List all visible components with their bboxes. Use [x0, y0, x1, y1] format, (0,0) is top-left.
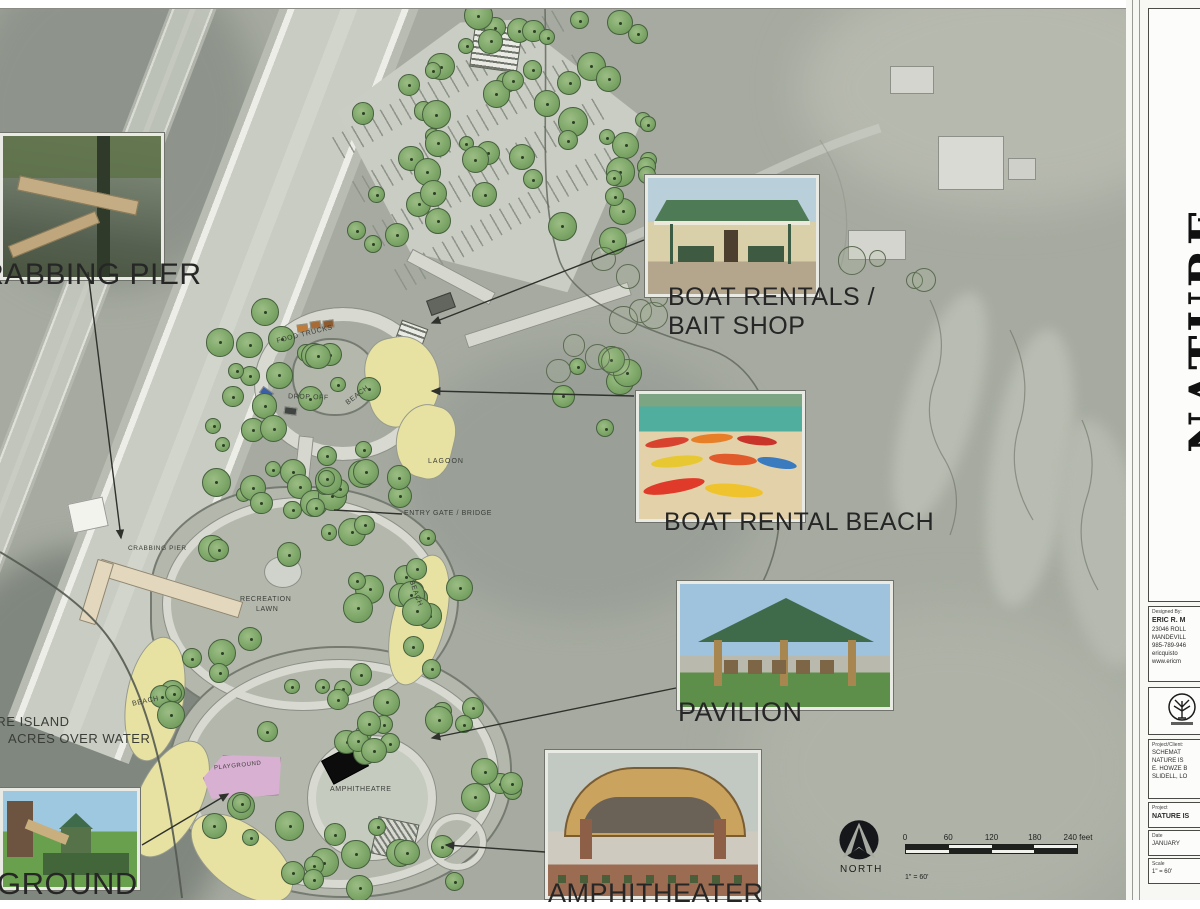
project-label: Project	[1152, 805, 1200, 811]
title-block: NATURE ISLAND Designed By: ERIC R. M 230…	[1126, 0, 1200, 900]
project-client-line-4: SLIDELL, LO	[1152, 773, 1200, 781]
date-value: JANUARY	[1152, 840, 1200, 848]
leader-lines	[0, 8, 1126, 900]
project-client-line-2: NATURE IS	[1152, 757, 1200, 765]
designer-box: Designed By: ERIC R. M 23046 ROLL MANDEV…	[1148, 606, 1200, 682]
designer-website: www.ericm	[1152, 658, 1200, 666]
sheet-title: NATURE ISLAND	[1179, 157, 1200, 453]
designer-address-2: MANDEVILL	[1152, 634, 1200, 642]
site-plan-sheet: CRABBING PIER BOAT RENTALS / BAIT SHOP B…	[0, 0, 1200, 900]
sheet-title-box: NATURE ISLAND	[1148, 8, 1200, 602]
designer-address-1: 23046 ROLL	[1152, 626, 1200, 634]
project-client-line-3: E. HOWZE B	[1152, 765, 1200, 773]
date-box: Date JANUARY	[1148, 830, 1200, 856]
designed-by-label: Designed By:	[1152, 609, 1200, 615]
project-value: NATURE IS	[1152, 812, 1200, 822]
project-client-label: Project/Client:	[1152, 742, 1200, 748]
date-label: Date	[1152, 833, 1200, 839]
logo-box	[1148, 687, 1200, 735]
scale-label: Scale	[1152, 861, 1200, 867]
tree-logo-icon	[1165, 691, 1199, 729]
designer-email: ericquisto	[1152, 650, 1200, 658]
scale-box: Scale 1" = 60'	[1148, 858, 1200, 884]
project-box: Project NATURE IS	[1148, 802, 1200, 828]
designer-name: ERIC R. M	[1152, 616, 1200, 626]
aerial-basemap	[0, 8, 1126, 900]
project-client-box: Project/Client: SCHEMAT NATURE IS E. HOW…	[1148, 739, 1200, 799]
scale-value: 1" = 60'	[1152, 868, 1200, 876]
project-client-line-1: SCHEMAT	[1152, 749, 1200, 757]
designer-phone: 985-789-946	[1152, 642, 1200, 650]
